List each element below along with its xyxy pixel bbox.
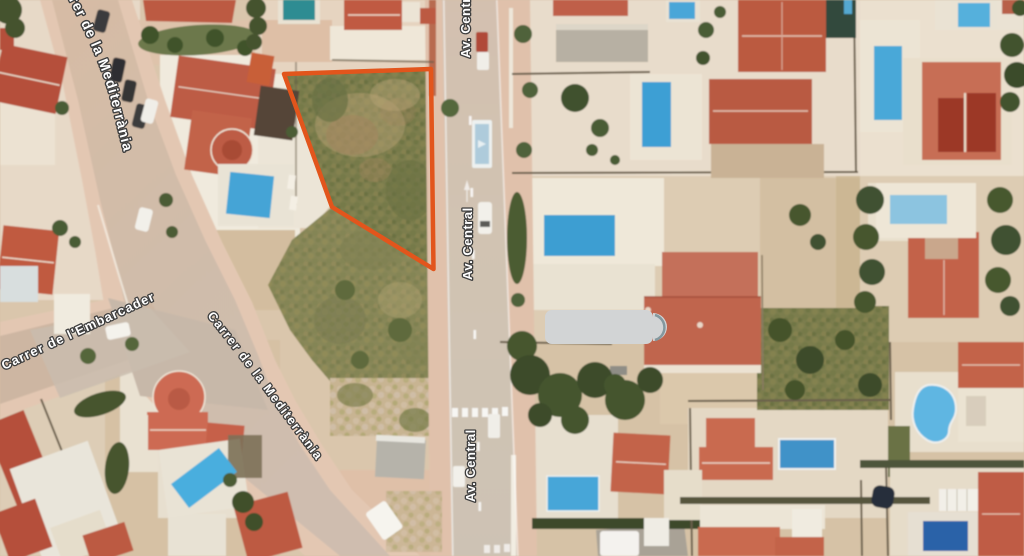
svg-text:Av. Central: Av. Central: [458, 0, 473, 58]
svg-text:Av. Central: Av. Central: [463, 429, 478, 502]
svg-text:Av. Central: Av. Central: [460, 207, 475, 280]
